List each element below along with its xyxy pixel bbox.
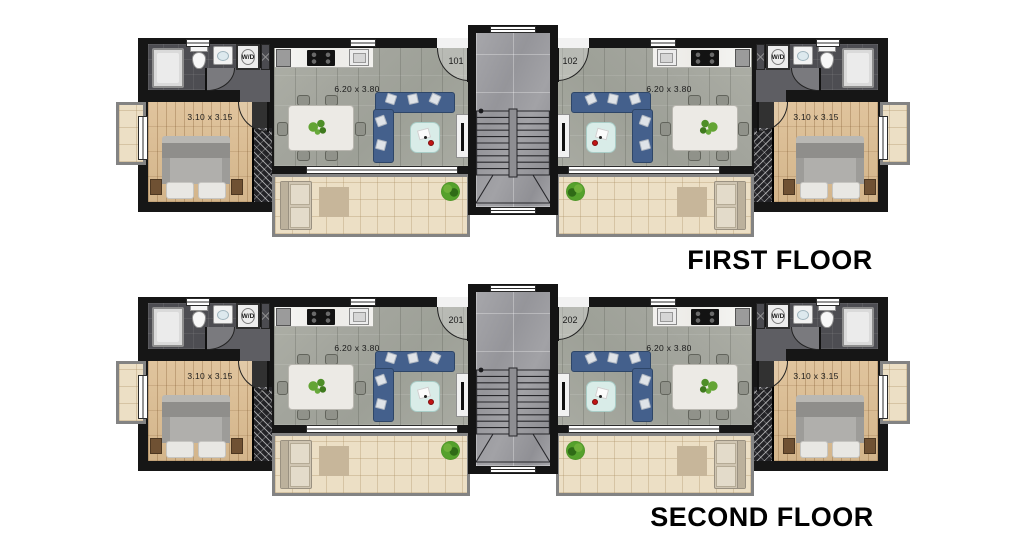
outdoor-sofa [280, 440, 312, 489]
dining-chair [297, 150, 310, 161]
outdoor-rug [319, 446, 349, 476]
tv-screen [461, 382, 464, 410]
bathroom-door [819, 68, 821, 91]
bathroom-sink [793, 305, 813, 324]
wardrobe [252, 387, 272, 461]
staircase [476, 292, 550, 466]
outdoor-sofa-cushion [716, 184, 736, 205]
bathroom-sink [213, 46, 233, 65]
sofa-pillow [407, 352, 419, 364]
nightstand [231, 438, 243, 454]
kitchen-sink-basin [353, 312, 366, 322]
fridge [276, 49, 291, 67]
bed [162, 395, 230, 461]
coffee-table-dot [424, 395, 427, 398]
balcony-plant [566, 441, 585, 460]
stair-newel-post [479, 368, 484, 373]
entry-doorway [556, 297, 589, 307]
table-plant [306, 118, 330, 138]
bed [796, 395, 864, 461]
outdoor-sofa-cushion [290, 466, 310, 487]
floor-plan: W/D 6.20 x 3.80 [110, 6, 916, 246]
washer-dryer: W/D [236, 303, 260, 329]
washer-dryer-label: W/D [238, 46, 258, 68]
utility-closet [261, 44, 270, 70]
washer-dryer-label: W/D [238, 305, 258, 327]
wardrobe [754, 128, 774, 202]
shower-tray [157, 312, 179, 342]
bed-blanket [796, 417, 864, 443]
dining-chair [277, 122, 288, 136]
sink-basin [217, 51, 229, 61]
tv-unit [557, 114, 570, 158]
dining-chair [355, 381, 366, 395]
outdoor-sofa [280, 181, 312, 230]
balcony [272, 433, 470, 496]
cooktop [307, 50, 335, 66]
outdoor-sofa-cushion [716, 207, 736, 228]
bedroom-door [757, 102, 760, 132]
sofa-pillow [607, 352, 619, 364]
coffee-table-red-decor [592, 140, 598, 146]
sofa-pillow [607, 93, 619, 105]
bathroom-sink [213, 305, 233, 324]
utility-closet [756, 44, 765, 70]
bathroom-door [819, 327, 821, 350]
stairwell [468, 284, 558, 474]
bed-pillow [166, 441, 194, 458]
shower [842, 48, 874, 88]
stairwell-window-bottom [490, 466, 536, 473]
nightstand [864, 179, 876, 195]
sink-basin [217, 310, 229, 320]
outdoor-rug [677, 446, 707, 476]
bed [796, 136, 864, 202]
balcony [556, 174, 754, 237]
entry-doorway [437, 38, 470, 48]
tv-screen [461, 123, 464, 151]
dining-chair [325, 150, 338, 161]
bedroom-door-threshold [756, 347, 786, 361]
bed-blanket [162, 417, 230, 443]
cooktop [307, 309, 335, 325]
dining-chair [297, 409, 310, 420]
wardrobe [754, 387, 774, 461]
apartment-unit: W/D 6.20 x 3.80 [110, 265, 478, 497]
outdoor-sofa-back [281, 182, 289, 229]
kitchen-sink [349, 308, 369, 325]
washer-dryer: W/D [766, 303, 790, 329]
kitchen-window [350, 39, 376, 47]
outdoor-sofa-back [281, 441, 289, 488]
dining-chair [716, 150, 729, 161]
stair-newel-post [479, 109, 484, 114]
washer-dryer: W/D [236, 44, 260, 70]
nightstand [150, 179, 162, 195]
unit-number: 102 [557, 56, 583, 66]
bed-pillow [800, 182, 828, 199]
nightstand [231, 179, 243, 195]
balcony-sliding-window [306, 166, 458, 174]
balcony-plant [441, 441, 460, 460]
bathroom-window [816, 39, 840, 47]
coffee-table-dot [599, 136, 602, 139]
kitchen-window [350, 298, 376, 306]
coffee-table [410, 122, 440, 153]
bedroom-door [757, 361, 760, 391]
dining-chair [716, 409, 729, 420]
floorplan-canvas: W/D 6.20 x 3.80 [0, 0, 1024, 547]
bed-blanket-fold [796, 402, 864, 418]
dining-chair [325, 409, 338, 420]
kitchen-sink [657, 308, 677, 325]
stairwell-window-top [490, 285, 536, 292]
balcony [272, 174, 470, 237]
unit-number: 101 [443, 56, 469, 66]
kitchen-sink [349, 49, 369, 66]
bathroom-window [186, 298, 210, 306]
bathroom-window [816, 298, 840, 306]
outdoor-sofa [714, 440, 746, 489]
stairwell [468, 25, 558, 215]
bedroom-window [878, 375, 888, 419]
bed-pillow [198, 182, 226, 199]
kitchen-window [650, 39, 676, 47]
bed-pillow [832, 441, 860, 458]
washer-dryer-label: W/D [768, 46, 788, 68]
fridge [735, 49, 750, 67]
entry-doorway [556, 38, 589, 48]
dining-chair [355, 122, 366, 136]
outdoor-sofa-cushion [290, 184, 310, 205]
outdoor-sofa-back [737, 182, 745, 229]
bed-blanket-fold [162, 402, 230, 418]
balcony-sliding-window [568, 425, 720, 433]
shower-tray [847, 312, 869, 342]
tv-screen [562, 382, 565, 410]
shower [842, 307, 874, 347]
dining-chair [277, 381, 288, 395]
dining-chair [738, 122, 749, 136]
coffee-table [410, 381, 440, 412]
floor-title: SECOND FLOOR [637, 502, 887, 533]
nightstand [783, 438, 795, 454]
utility-closet [261, 303, 270, 329]
sink-basin [797, 310, 809, 320]
coffee-table-red-decor [428, 399, 434, 405]
nightstand [150, 438, 162, 454]
nightstand [864, 438, 876, 454]
shower-tray [847, 53, 869, 83]
dining-chair [660, 122, 671, 136]
bed [162, 136, 230, 202]
bed-pillow [832, 182, 860, 199]
balcony-plant [441, 182, 460, 201]
outdoor-sofa-back [737, 441, 745, 488]
balcony-sliding-window [306, 425, 458, 433]
outdoor-sofa-cushion [290, 207, 310, 228]
outdoor-sofa [714, 181, 746, 230]
apartment-unit: W/D 6.20 x 3.80 [548, 6, 916, 238]
unit-number: 201 [443, 315, 469, 325]
coffee-table-red-decor [592, 399, 598, 405]
cooktop [691, 50, 719, 66]
coffee-table [586, 381, 616, 412]
outdoor-sofa-cushion [290, 443, 310, 464]
dining-chair [660, 381, 671, 395]
dining-chair [738, 381, 749, 395]
kitchen-sink-basin [660, 53, 673, 63]
bedroom-window [878, 116, 888, 160]
coffee-table-decor [595, 128, 609, 141]
bedroom-door-threshold [240, 88, 270, 102]
coffee-table-dot [599, 395, 602, 398]
washer-dryer: W/D [766, 44, 790, 70]
apartment-unit: W/D 6.20 x 3.80 [548, 265, 916, 497]
kitchen-window [650, 298, 676, 306]
utility-closet [756, 303, 765, 329]
coffee-table-decor [595, 387, 609, 400]
bedroom-door [267, 361, 270, 391]
bed-pillow [800, 441, 828, 458]
outdoor-rug [677, 187, 707, 217]
dining-chair [688, 409, 701, 420]
stairwell-window-bottom [490, 207, 536, 214]
bed-pillow [166, 182, 194, 199]
balcony-plant [566, 182, 585, 201]
floor-plan: W/D 6.20 x 3.80 [110, 265, 916, 505]
shower-tray [157, 53, 179, 83]
shower [152, 307, 184, 347]
apartment-unit: W/D 6.20 x 3.80 [110, 6, 478, 238]
bedroom-door-threshold [756, 88, 786, 102]
nightstand [783, 179, 795, 195]
outdoor-sofa-cushion [716, 466, 736, 487]
bed-blanket-fold [796, 143, 864, 159]
stairwell-window-top [490, 26, 536, 33]
stair-rail [509, 368, 517, 436]
unit-number: 202 [557, 315, 583, 325]
sink-basin [797, 51, 809, 61]
table-plant [306, 377, 330, 397]
balcony [556, 433, 754, 496]
bedroom-door-threshold [240, 347, 270, 361]
fridge [276, 308, 291, 326]
cooktop [691, 309, 719, 325]
balcony-sliding-window [568, 166, 720, 174]
coffee-table [586, 122, 616, 153]
wardrobe [252, 128, 272, 202]
bed-blanket [796, 158, 864, 184]
fridge [735, 308, 750, 326]
bed-pillow [198, 441, 226, 458]
bed-blanket-fold [162, 143, 230, 159]
kitchen-sink-basin [660, 312, 673, 322]
outdoor-sofa-cushion [716, 443, 736, 464]
tv-unit [557, 373, 570, 417]
coffee-table-dot [424, 136, 427, 139]
sofa-pillow [407, 93, 419, 105]
tv-screen [562, 123, 565, 151]
bathroom-sink [793, 46, 813, 65]
dining-chair [688, 150, 701, 161]
kitchen-sink [657, 49, 677, 66]
shower [152, 48, 184, 88]
outdoor-rug [319, 187, 349, 217]
bathroom-window [186, 39, 210, 47]
bedroom-door [267, 102, 270, 132]
kitchen-sink-basin [353, 53, 366, 63]
bedroom-window [138, 375, 148, 419]
staircase [476, 33, 550, 207]
entry-doorway [437, 297, 470, 307]
coffee-table-red-decor [428, 140, 434, 146]
bed-blanket [162, 158, 230, 184]
stair-rail [509, 109, 517, 177]
table-plant [696, 377, 720, 397]
washer-dryer-label: W/D [768, 305, 788, 327]
table-plant [696, 118, 720, 138]
bedroom-window [138, 116, 148, 160]
